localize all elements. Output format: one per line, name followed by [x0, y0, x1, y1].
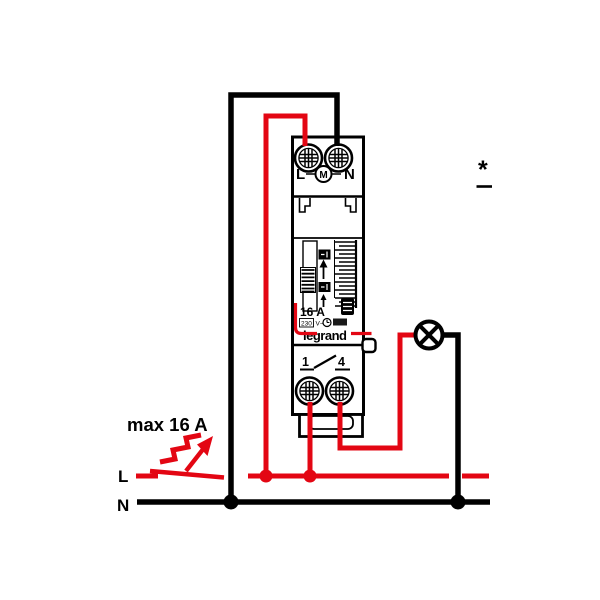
junction-dot-red-1	[260, 470, 273, 483]
max-current-label: max 16 A	[127, 414, 208, 435]
contact-label-4: 4	[338, 355, 345, 369]
side-clip	[363, 339, 376, 352]
push-button-lever	[150, 471, 224, 478]
l-label: L	[118, 467, 128, 486]
label-fineprint-bar	[333, 319, 347, 326]
junction-dot-black-1	[224, 495, 239, 510]
n-label: N	[117, 496, 129, 515]
lamp-icon	[416, 322, 443, 349]
voltage-label: 230	[301, 321, 312, 328]
junction-dot-red-2	[304, 470, 317, 483]
time-switch-device: L N M 16 A	[293, 137, 376, 437]
terminal-label-l: L	[296, 166, 305, 183]
screw-terminal-icon-bottom-right	[326, 378, 353, 405]
wiring-diagram: L N M 16 A	[0, 0, 600, 600]
push-button-icon	[150, 435, 224, 478]
contact-label-1: 1	[302, 355, 309, 369]
press-arrow-shaft	[186, 448, 204, 471]
brand-logo: legrand	[303, 328, 347, 343]
asterisk-note: *	[478, 156, 488, 184]
junction-dot-black-2	[451, 495, 466, 510]
timer-slider-grip	[302, 270, 315, 292]
motor-label: M	[319, 170, 327, 181]
terminal-label-n: N	[344, 166, 355, 183]
rating-label: 16 A	[300, 305, 325, 319]
wiring-diagram-canvas: L N M 16 A	[0, 0, 600, 600]
screw-terminal-icon-bottom-left	[296, 378, 323, 405]
